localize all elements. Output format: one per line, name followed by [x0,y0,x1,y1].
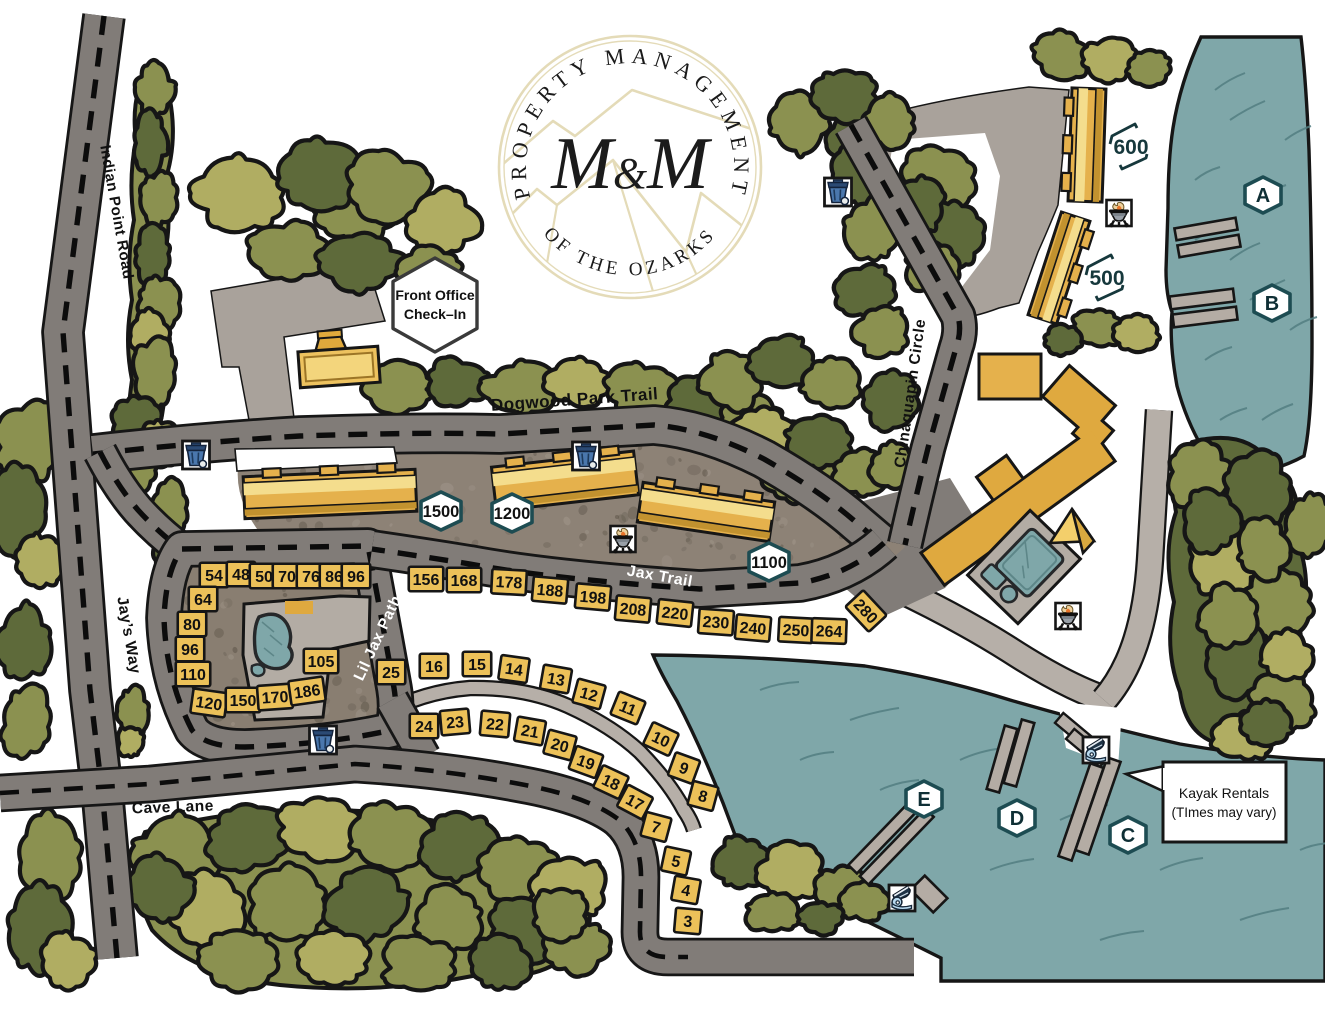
svg-text:23: 23 [446,714,465,732]
svg-text:264: 264 [815,623,842,641]
svg-text:1500: 1500 [423,503,460,521]
svg-text:64: 64 [194,592,212,609]
svg-text:250: 250 [782,622,810,640]
svg-text:Check–In: Check–In [404,306,466,322]
svg-text:600: 600 [1113,136,1148,159]
svg-text:220: 220 [661,604,689,624]
svg-text:13: 13 [546,670,567,690]
svg-text:170: 170 [261,689,289,708]
svg-text:(TImes may vary): (TImes may vary) [1171,805,1276,820]
svg-text:Front Office: Front Office [395,287,475,303]
svg-text:208: 208 [619,601,647,620]
svg-text:B: B [1265,293,1279,315]
svg-text:76: 76 [302,569,320,586]
svg-text:A: A [1256,185,1270,207]
svg-text:24: 24 [415,719,433,736]
svg-text:70: 70 [278,569,296,586]
svg-text:3: 3 [683,913,693,931]
svg-text:110: 110 [180,667,206,684]
svg-text:22: 22 [485,716,504,734]
svg-text:C: C [1121,825,1135,847]
svg-text:105: 105 [308,654,335,671]
svg-text:500: 500 [1089,267,1124,290]
svg-text:14: 14 [504,661,524,680]
svg-text:50: 50 [255,569,273,586]
svg-text:240: 240 [739,620,767,639]
svg-text:198: 198 [579,589,607,608]
svg-text:1200: 1200 [494,505,531,523]
svg-text:168: 168 [451,573,478,590]
svg-text:16: 16 [425,659,443,676]
svg-text:86: 86 [325,569,343,586]
svg-text:15: 15 [468,657,486,674]
svg-text:96: 96 [347,569,365,586]
svg-text:25: 25 [382,665,400,682]
svg-text:96: 96 [181,642,199,659]
svg-text:230: 230 [702,614,730,633]
svg-text:80: 80 [183,617,201,634]
svg-text:54: 54 [205,568,223,585]
svg-text:E: E [917,789,930,811]
svg-text:48: 48 [232,567,250,584]
svg-text:150: 150 [230,693,257,710]
svg-text:1100: 1100 [751,554,787,572]
svg-text:188: 188 [536,582,564,601]
svg-text:178: 178 [495,574,523,592]
svg-text:21: 21 [520,722,541,742]
svg-text:156: 156 [413,572,440,589]
svg-text:D: D [1010,808,1024,830]
svg-text:Kayak Rentals: Kayak Rentals [1179,785,1269,801]
svg-text:Cave Lane: Cave Lane [132,798,215,818]
